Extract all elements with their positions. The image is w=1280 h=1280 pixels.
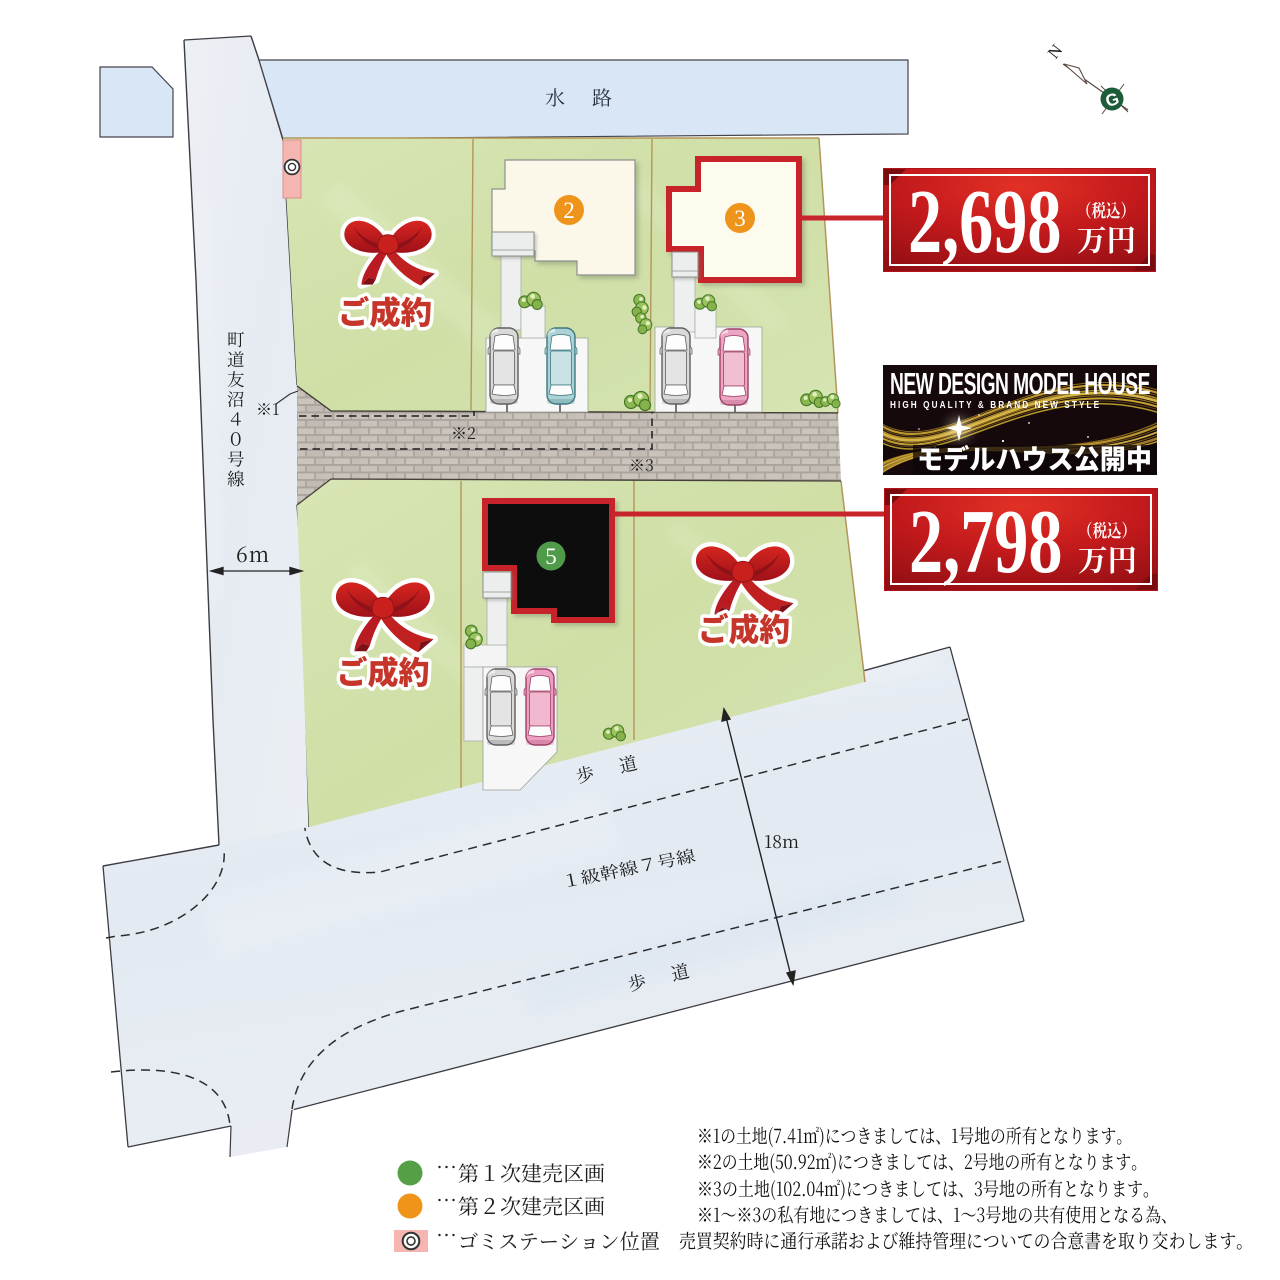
svg-text:2: 2 [563, 198, 575, 223]
svg-text:2,798: 2,798 [909, 492, 1063, 593]
svg-text:NEW DESIGN MODEL HOUSE: NEW DESIGN MODEL HOUSE [890, 368, 1150, 402]
svg-text:2,698: 2,698 [908, 172, 1062, 273]
svg-text:3: 3 [734, 206, 746, 231]
svg-text:5: 5 [545, 544, 557, 569]
